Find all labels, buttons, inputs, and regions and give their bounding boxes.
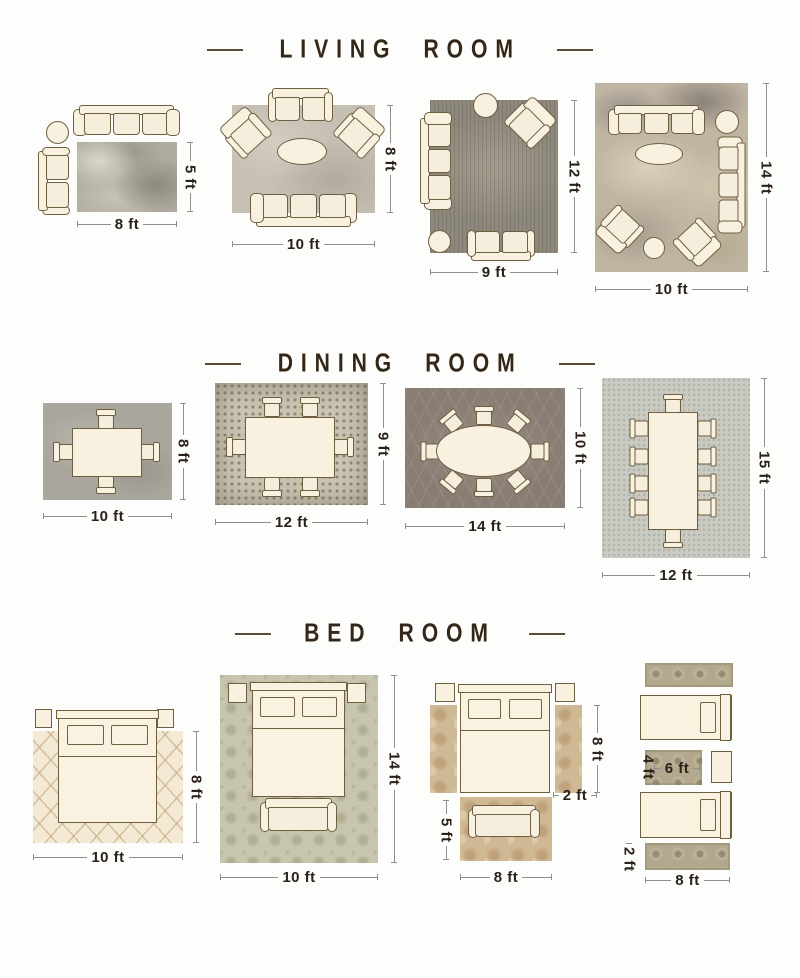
dimension-label: 12 ft	[659, 568, 692, 583]
foot-rug-height-dimension: 5 ft	[438, 800, 454, 860]
dining-chair	[300, 397, 320, 417]
foot-rug-width-dimension: 8 ft	[460, 869, 552, 885]
rug-width-dimension: 10 ft	[33, 849, 183, 865]
title-dash	[205, 363, 241, 366]
rug-height-dimension: 14 ft	[386, 675, 402, 863]
dimension-label: 8 ft	[383, 147, 398, 172]
dimension-label: 5 ft	[183, 165, 198, 190]
nightstand	[228, 683, 247, 703]
rug-height-dimension: 9 ft	[375, 383, 391, 505]
title-dash	[235, 633, 271, 636]
dining-chair	[96, 474, 116, 494]
sofa-three-seat	[73, 105, 180, 136]
runner-width-dimension: 2 ft	[621, 843, 637, 870]
coffee-table-oval	[277, 138, 327, 165]
dimension-label: 2 ft	[563, 788, 588, 803]
pillow	[468, 699, 501, 719]
dining-chair	[474, 478, 494, 497]
sofa-three-seat	[718, 137, 746, 234]
nightstand	[157, 709, 174, 728]
section-title-text: BED ROOM	[304, 619, 496, 649]
rug-width-dimension: 12 ft	[215, 514, 368, 530]
twin-bed-runner-rug	[645, 663, 733, 687]
dimension-label: 8 ft	[115, 217, 140, 232]
headboard	[720, 791, 731, 839]
dimension-label: 8 ft	[494, 870, 519, 885]
dining-chair	[630, 498, 649, 518]
dimension-label: 12 ft	[275, 515, 308, 530]
rug-height-dimension: 14 ft	[758, 83, 774, 272]
title-dash	[529, 633, 565, 636]
rug-width-dimension: 12 ft	[602, 567, 750, 583]
dimension-label: 14 ft	[468, 519, 501, 534]
dining-table	[245, 417, 335, 478]
rug-height-dimension: 8 ft	[175, 403, 191, 500]
dimension-label: 8 ft	[176, 439, 191, 464]
side-table-round	[46, 121, 69, 144]
dining-chair	[531, 442, 550, 462]
rug-width-dimension: 10 ft	[595, 281, 748, 297]
dining-chair	[300, 477, 320, 497]
dimension-label: 10 ft	[91, 850, 124, 865]
headboard	[720, 694, 731, 741]
headboard	[458, 684, 552, 693]
runner-length-dimension: 8 ft	[589, 705, 605, 793]
dining-chair	[698, 447, 717, 467]
dimension-label: 8 ft	[189, 775, 204, 800]
bed-queen	[252, 683, 345, 797]
dimension-label: 8 ft	[675, 873, 700, 888]
twin-bed-runner-rug	[645, 843, 730, 870]
dining-chair	[96, 409, 116, 429]
title-dash	[207, 49, 243, 52]
dining-chair	[226, 437, 246, 457]
sofa-three-seat	[608, 105, 705, 135]
dining-chair	[663, 394, 683, 413]
pillow	[260, 697, 295, 717]
bench	[260, 798, 337, 832]
section-title-text: DINING ROOM	[278, 349, 523, 379]
rug-height-dimension: 12 ft	[566, 100, 582, 253]
nightstand	[347, 683, 366, 703]
rug-width-dimension: 10 ft	[43, 508, 172, 524]
title-dash	[559, 363, 595, 366]
pillow	[67, 725, 104, 745]
rug-width-dimension: 14 ft	[405, 518, 565, 534]
dining-chair	[698, 498, 717, 518]
coffee-table-oval	[635, 143, 683, 165]
rug-width-dimension: 9 ft	[430, 264, 558, 280]
pillow	[509, 699, 542, 719]
rug-height-dimension: 15 ft	[756, 378, 772, 558]
rug-width-dimension: 10 ft	[232, 236, 375, 252]
sofa-three-seat	[420, 112, 452, 210]
bed-queen	[460, 685, 550, 793]
nightstand	[555, 683, 575, 702]
dining-chair	[262, 477, 282, 497]
rug-width-dimension: 8 ft	[77, 216, 177, 232]
loveseat-two-seat	[467, 230, 535, 261]
dining-table	[648, 412, 698, 530]
dimension-label: 5 ft	[439, 818, 454, 843]
rug-height-dimension: 8 ft	[382, 105, 398, 213]
dimension-label: 9 ft	[376, 432, 391, 457]
nightstand	[711, 751, 732, 783]
dimension-label: 15 ft	[757, 451, 772, 484]
dining-chair	[334, 437, 354, 457]
sofa-three-seat	[250, 193, 357, 227]
side-table-round	[643, 237, 665, 259]
dimension-label: 14 ft	[759, 161, 774, 194]
rug-height-dimension: 5 ft	[182, 142, 198, 212]
dimension-label: 14 ft	[387, 752, 402, 785]
living-room-rug-8x5	[77, 142, 177, 212]
twin-bed	[640, 792, 732, 838]
dimension-label: 10 ft	[655, 282, 688, 297]
dining-chair	[698, 419, 717, 439]
dimension-label: 8 ft	[590, 737, 605, 762]
title-dash	[557, 49, 593, 52]
section-title-text: LIVING ROOM	[279, 35, 520, 65]
rug-width-dimension: 10 ft	[220, 869, 378, 885]
section-title-bed-room: BED ROOM	[0, 620, 800, 648]
dimension-label: 12 ft	[567, 160, 582, 193]
bedside-runner-rug	[555, 705, 582, 793]
headboard	[250, 682, 347, 691]
dining-chair	[630, 419, 649, 439]
dining-table	[72, 428, 142, 477]
dining-chair	[474, 406, 494, 425]
bedside-runner-rug	[430, 705, 457, 793]
dimension-label: 10 ft	[91, 509, 124, 524]
bench	[468, 805, 540, 838]
side-table-round	[473, 93, 498, 118]
pillow	[302, 697, 337, 717]
rug-height-dimension: 8 ft	[188, 731, 204, 843]
dining-chair	[630, 474, 649, 494]
nightstand	[35, 709, 52, 728]
side-table-round	[428, 230, 451, 253]
dining-table-oval	[436, 425, 531, 477]
pillow	[700, 702, 716, 733]
dimension-label: 10 ft	[573, 431, 588, 464]
dining-chair	[53, 442, 73, 462]
nightstand	[435, 683, 455, 702]
dining-chair	[698, 474, 717, 494]
dimension-label: 9 ft	[482, 265, 507, 280]
side-table-round	[715, 110, 739, 134]
small-rug-width-dimension: 6 ft	[654, 760, 700, 776]
runner-length-dimension: 8 ft	[645, 872, 730, 888]
dining-chair	[630, 447, 649, 467]
dimension-label: 2 ft	[622, 847, 637, 872]
twin-bed	[640, 695, 732, 740]
section-title-dining-room: DINING ROOM	[0, 350, 800, 378]
runner-width-dimension: 2 ft	[553, 787, 597, 803]
rug-size-guide-infographic: LIVING ROOM 8 ft 5 ft 10 ft 8 ft 9 ft 12…	[0, 0, 800, 978]
rug-height-dimension: 10 ft	[572, 388, 588, 508]
headboard	[56, 710, 159, 719]
loveseat-two-seat	[38, 147, 70, 215]
dining-chair	[663, 529, 683, 548]
pillow	[700, 799, 716, 831]
dining-chair	[262, 397, 282, 417]
dimension-label: 6 ft	[665, 761, 690, 776]
dimension-label: 10 ft	[282, 870, 315, 885]
loveseat-two-seat	[268, 88, 333, 122]
dining-chair	[140, 442, 160, 462]
pillow	[111, 725, 148, 745]
bed-queen	[58, 711, 157, 823]
dimension-label: 10 ft	[287, 237, 320, 252]
section-title-living-room: LIVING ROOM	[0, 36, 800, 64]
